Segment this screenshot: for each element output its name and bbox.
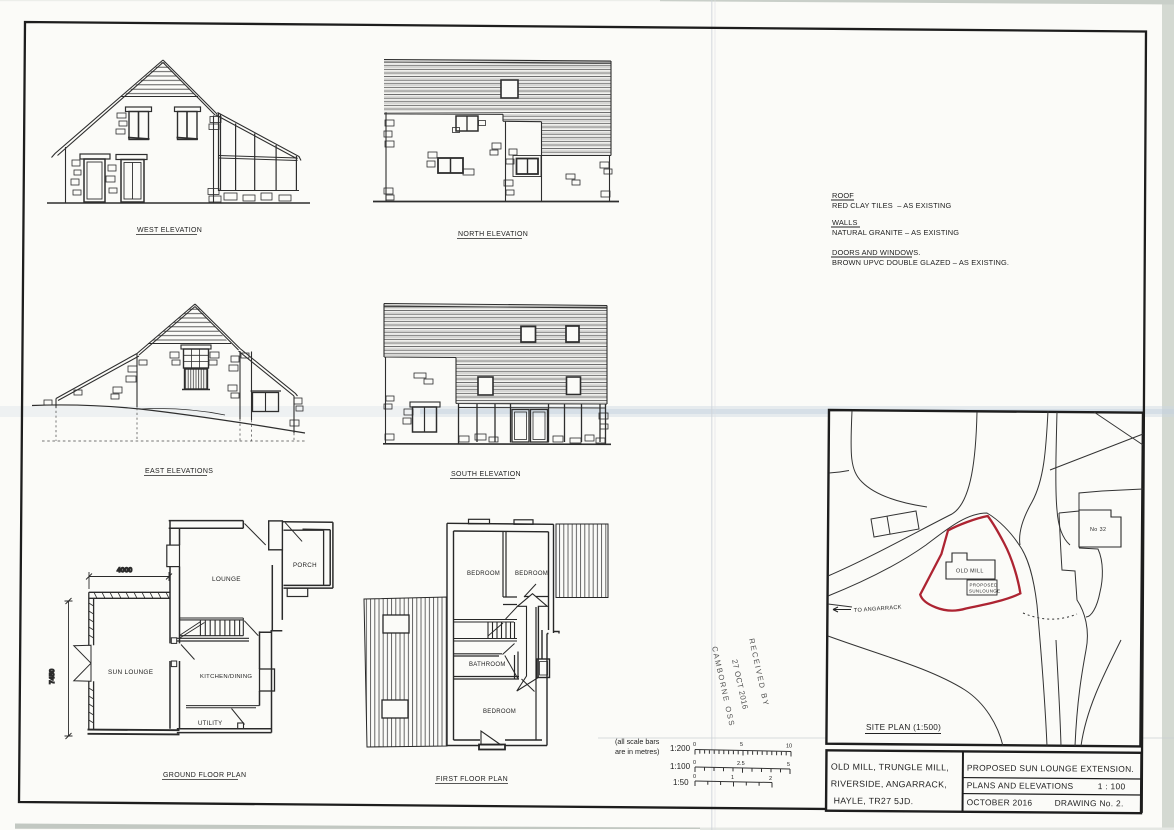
- svg-text:ROOF: ROOF: [832, 191, 854, 200]
- svg-text:PORCH: PORCH: [293, 562, 317, 569]
- svg-text:BEDROOM: BEDROOM: [483, 709, 516, 715]
- svg-text:DRAWING No. 2.: DRAWING No. 2.: [1055, 798, 1124, 809]
- svg-text:1 : 100: 1 : 100: [1098, 781, 1126, 791]
- svg-text:2.5: 2.5: [737, 761, 745, 767]
- svg-text:SUNLOUNGE: SUNLOUNGE: [969, 589, 1000, 594]
- svg-text:NATURAL GRANITE – AS EXISTING: NATURAL GRANITE – AS EXISTING: [832, 228, 959, 237]
- svg-text:NORTH ELEVATION: NORTH ELEVATION: [458, 231, 528, 238]
- svg-text:SOUTH ELEVATION: SOUTH ELEVATION: [451, 471, 521, 478]
- svg-text:FIRST FLOOR PLAN: FIRST FLOOR PLAN: [436, 776, 508, 783]
- svg-text:1: 1: [731, 775, 734, 781]
- svg-text:OCTOBER 2016: OCTOBER 2016: [967, 797, 1033, 808]
- svg-text:DOORS AND WINDOWS.: DOORS AND WINDOWS.: [832, 248, 921, 257]
- svg-text:BATHROOM: BATHROOM: [469, 662, 506, 668]
- svg-text:1:200: 1:200: [670, 744, 691, 753]
- svg-text:GROUND FLOOR PLAN: GROUND FLOOR PLAN: [163, 772, 246, 779]
- svg-text:BEDROOM: BEDROOM: [467, 571, 500, 577]
- svg-text:10: 10: [786, 744, 792, 750]
- svg-text:RED CLAY TILES – AS EXISTING: RED CLAY TILES – AS EXISTING: [832, 201, 951, 210]
- svg-text:UTILITY: UTILITY: [198, 721, 222, 727]
- svg-text:are in metres): are in metres): [615, 747, 659, 756]
- svg-text:OLD MILL: OLD MILL: [956, 569, 984, 575]
- svg-text:2: 2: [769, 776, 772, 782]
- svg-text:No 32: No 32: [1090, 527, 1106, 533]
- svg-text:PROPOSED SUN LOUNGE EXTENSION.: PROPOSED SUN LOUNGE EXTENSION.: [967, 763, 1134, 774]
- svg-text:0: 0: [693, 760, 696, 766]
- svg-text:WEST ELEVATION: WEST ELEVATION: [137, 227, 202, 234]
- svg-text:PROPOSED: PROPOSED: [970, 583, 998, 588]
- svg-text:BROWN UPVC DOUBLE GLAZED – AS: BROWN UPVC DOUBLE GLAZED – AS EXISTING.: [832, 258, 1009, 267]
- svg-text:SUN LOUNGE: SUN LOUNGE: [108, 669, 153, 676]
- svg-text:LOUNGE: LOUNGE: [212, 576, 241, 583]
- svg-text:RIVERSIDE, ANGARRACK,: RIVERSIDE, ANGARRACK,: [831, 779, 947, 790]
- svg-text:BEDROOM: BEDROOM: [515, 571, 548, 577]
- svg-text:7450: 7450: [49, 668, 56, 684]
- svg-text:KITCHEN/DINING: KITCHEN/DINING: [200, 674, 252, 680]
- svg-text:(all scale bars: (all scale bars: [615, 737, 660, 746]
- svg-text:EAST ELEVATIONS: EAST ELEVATIONS: [145, 468, 213, 475]
- svg-text:1:50: 1:50: [673, 778, 689, 787]
- svg-text:PLANS AND ELEVATIONS: PLANS AND ELEVATIONS: [967, 780, 1074, 791]
- svg-text:4000: 4000: [117, 567, 133, 574]
- svg-text:1:100: 1:100: [670, 762, 691, 771]
- svg-text:OLD MILL, TRUNGLE MILL,: OLD MILL, TRUNGLE MILL,: [831, 762, 949, 773]
- svg-text:WALLS: WALLS: [832, 218, 858, 227]
- svg-text:HAYLE, TR27 5JD.: HAYLE, TR27 5JD.: [834, 796, 914, 807]
- svg-text:5: 5: [787, 762, 790, 768]
- svg-text:SITE PLAN (1:500): SITE PLAN (1:500): [866, 723, 941, 732]
- svg-text:0: 0: [693, 774, 696, 780]
- svg-text:5: 5: [740, 742, 743, 748]
- svg-text:0: 0: [693, 742, 696, 748]
